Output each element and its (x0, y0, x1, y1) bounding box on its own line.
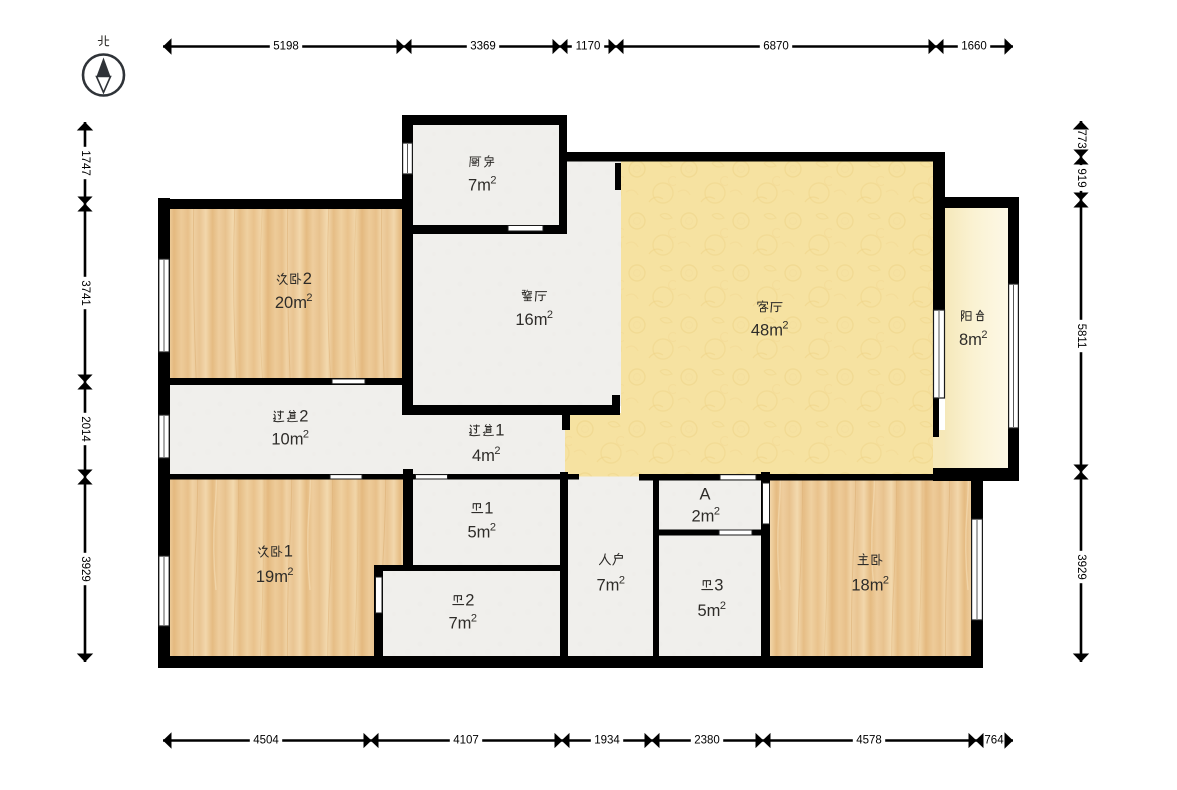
svg-text:18m: 18m (851, 577, 883, 595)
svg-text:10m: 10m (271, 431, 303, 449)
svg-text:2: 2 (490, 175, 496, 187)
svg-text:5m: 5m (467, 524, 490, 542)
svg-text:2: 2 (883, 575, 889, 587)
svg-text:2m: 2m (691, 508, 714, 526)
svg-text:A: A (699, 486, 710, 504)
svg-text:2: 2 (981, 329, 987, 341)
svg-text:1747: 1747 (79, 150, 91, 176)
svg-text:2: 2 (714, 506, 720, 518)
svg-text:764: 764 (984, 735, 1004, 747)
svg-text:3929: 3929 (1075, 554, 1087, 580)
svg-text:4m: 4m (472, 447, 495, 465)
svg-text:3: 3 (714, 577, 723, 595)
svg-text:1660: 1660 (961, 41, 987, 53)
svg-text:1: 1 (284, 543, 293, 561)
svg-text:4578: 4578 (856, 735, 882, 747)
svg-text:2: 2 (494, 445, 500, 457)
svg-text:2380: 2380 (694, 735, 720, 747)
svg-text:2: 2 (303, 429, 309, 441)
svg-text:2: 2 (471, 613, 477, 625)
svg-text:1: 1 (484, 500, 493, 518)
svg-text:5811: 5811 (1075, 324, 1087, 349)
svg-text:2: 2 (287, 566, 293, 578)
svg-text:7m: 7m (448, 615, 471, 633)
svg-text:8m: 8m (959, 331, 982, 349)
svg-text:6870: 6870 (763, 41, 789, 53)
svg-text:3929: 3929 (79, 556, 91, 582)
svg-text:4107: 4107 (453, 735, 479, 747)
svg-text:3369: 3369 (470, 41, 496, 53)
svg-text:2: 2 (465, 592, 474, 610)
svg-text:2: 2 (547, 309, 553, 321)
svg-text:2: 2 (303, 270, 312, 288)
svg-text:7m: 7m (596, 577, 619, 595)
svg-text:5m: 5m (697, 602, 720, 620)
svg-text:773: 773 (1075, 129, 1087, 148)
svg-text:20m: 20m (275, 294, 307, 312)
svg-text:1170: 1170 (576, 41, 601, 53)
svg-text:19m: 19m (256, 568, 288, 586)
svg-text:2: 2 (306, 292, 312, 304)
svg-text:919: 919 (1075, 168, 1087, 187)
svg-text:4504: 4504 (253, 735, 279, 747)
svg-text:2014: 2014 (79, 416, 91, 442)
svg-text:1934: 1934 (594, 735, 620, 747)
svg-text:2: 2 (299, 408, 308, 426)
svg-text:48m: 48m (751, 322, 783, 340)
svg-text:2: 2 (490, 522, 496, 534)
svg-text:2: 2 (782, 320, 788, 332)
svg-text:2: 2 (619, 575, 625, 587)
svg-text:16m: 16m (515, 311, 547, 329)
svg-text:7m: 7m (468, 177, 491, 195)
svg-text:1: 1 (495, 422, 504, 440)
svg-text:2: 2 (720, 600, 726, 612)
svg-text:3741: 3741 (79, 280, 91, 306)
svg-text:5198: 5198 (273, 41, 299, 53)
